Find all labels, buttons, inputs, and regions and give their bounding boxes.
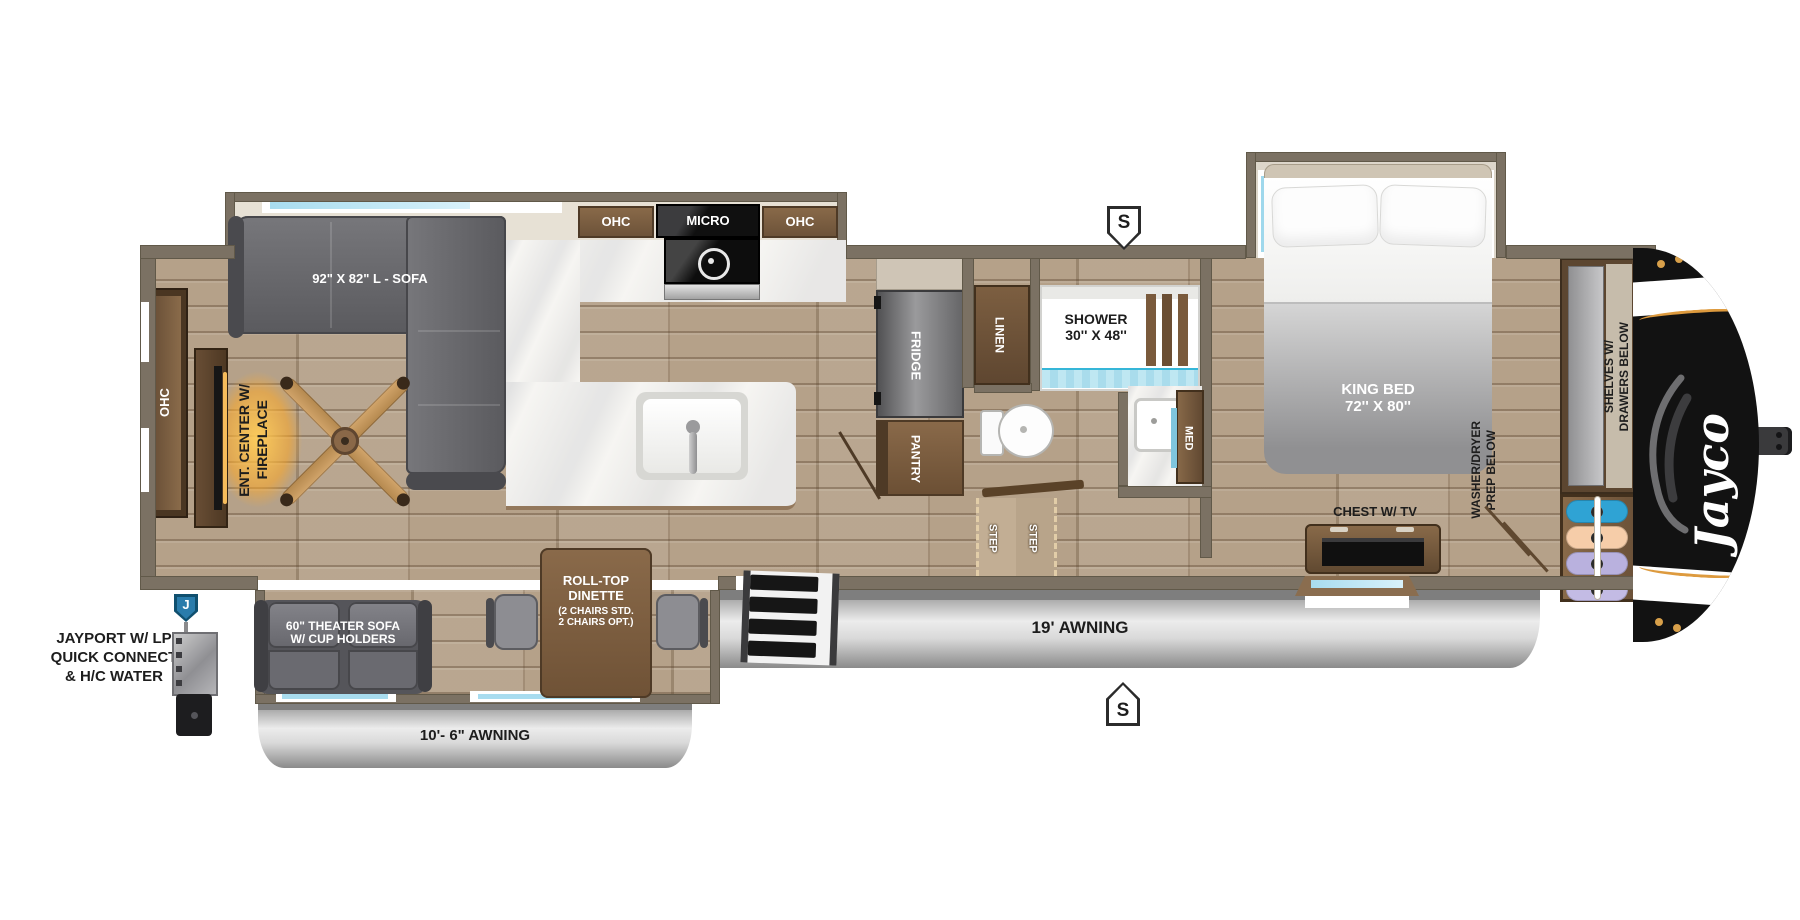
ent-center-label: ENT. CENTER W/ FIREPLACE [232, 352, 276, 528]
shelves-label-line2: DRAWERS BELOW [1618, 322, 1631, 431]
bed-label-line2: 72'' X 80'' [1298, 399, 1458, 416]
entry-step-tread-2 [749, 597, 817, 614]
dinette-label-line1: ROLL-TOP [542, 574, 650, 589]
sofa-seam-2 [418, 330, 500, 332]
step-label-1: STEP [986, 516, 998, 560]
jayport-label-line1: JAYPORT W/ LP [36, 630, 192, 649]
s-marker-top-letter: S [1107, 212, 1141, 233]
bottom-wall-front-segment [718, 576, 1648, 590]
hitch-pin-dot-1 [1776, 432, 1782, 438]
awning-rear-label: 10'- 6" AWNING [300, 728, 650, 745]
theater-sofa-seat-left [268, 650, 340, 690]
jayport-label-line3: & H/C WATER [36, 668, 192, 687]
top-wall-rear-segment [140, 245, 235, 259]
entry-step-tread-3 [748, 619, 816, 636]
sofa-seam-3 [418, 404, 500, 406]
theater-sofa-label: 60" THEATER SOFA W/ CUP HOLDERS [262, 620, 424, 647]
washer-dryer-label-line1: WASHER/DRYER [1470, 421, 1483, 519]
top-wall-mid-segment [846, 245, 1246, 259]
bath-wall-linen-shower [1030, 258, 1040, 391]
bath-wall-bottom-right [1118, 486, 1212, 498]
theater-sofa-seat-right [348, 650, 418, 690]
ent-center-label-line1: ENT. CENTER W/ [237, 384, 253, 497]
shower-water-strip [1042, 368, 1198, 388]
bed-slide-wall-top [1246, 152, 1506, 162]
bed-slide-wall-right [1496, 152, 1506, 258]
chest-handle-left [1330, 527, 1348, 532]
ceiling-fan [298, 394, 394, 490]
ohc-right-label: OHC [762, 215, 838, 230]
cap-gold-dot-bottom-2 [1673, 624, 1681, 632]
bed-label-line1: KING BED [1298, 382, 1458, 399]
dinette-label-line2: DINETTE [542, 589, 650, 604]
ent-center-glowline [223, 372, 227, 504]
linen-label: LINEN [992, 302, 1005, 368]
theater-sofa-label-line2: W/ CUP HOLDERS [262, 633, 424, 646]
med-vanity-sink-dot [1151, 418, 1157, 424]
bed-pillow-right [1379, 184, 1487, 248]
sofa-arm-bottom [406, 472, 506, 490]
fridge-hinge-top [874, 296, 881, 309]
micro-label: MICRO [656, 214, 760, 229]
cap-gold-dot-top-2 [1675, 255, 1683, 263]
ent-center-screen [214, 366, 222, 510]
rear-wall [140, 245, 156, 590]
awning-main-label: 19' AWNING [960, 618, 1200, 637]
cap-gold-dot-top-1 [1657, 260, 1665, 268]
kitchen-faucet-neck [689, 432, 697, 474]
chest-tv [1322, 538, 1424, 566]
cap-gold-dot-bottom-1 [1655, 618, 1663, 626]
chest-label: CHEST W/ TV [1305, 505, 1445, 520]
shower-label-line1: SHOWER [1040, 312, 1152, 328]
toilet-seat-dot [1020, 426, 1027, 433]
kitchen-slide-window-glass [270, 201, 470, 209]
jayport-tag-letter: J [174, 598, 198, 613]
dinette-label-line4: 2 CHAIRS OPT.) [542, 617, 650, 628]
kitchen-slide-wall-top [225, 192, 847, 202]
slide-window-sofa-glass [282, 694, 388, 699]
fridge-hinge-bottom [874, 392, 881, 405]
stove-front-panel [664, 284, 760, 300]
shelves-label: SHELVES W/ DRAWERS BELOW [1598, 270, 1636, 484]
pantry-door-fold [876, 420, 888, 496]
dinette-chair-left-back [486, 598, 494, 648]
step-label-2: STEP [1026, 516, 1038, 560]
jayport-label-line2: QUICK CONNECT [36, 649, 192, 668]
bedroom-bottom-window-glass [1311, 580, 1403, 588]
entry-steps [740, 570, 839, 665]
bottom-slide-wall-right [710, 590, 720, 704]
dinette-chair-left [494, 594, 538, 650]
washer-dryer-label: WASHER/DRYER PREP BELOW [1466, 414, 1502, 526]
jayport-stem [184, 622, 188, 632]
shelves-label-line1: SHELVES W/ [1603, 340, 1616, 413]
med-cabinet-blue-strip [1171, 408, 1177, 468]
ohc-left-label: OHC [578, 215, 654, 230]
shower-label-line2: 30'' X 48'' [1040, 328, 1152, 344]
rear-wall-window-2 [141, 428, 149, 492]
bed-slide-wall-left [1246, 152, 1256, 258]
stove-burner [698, 248, 730, 280]
jayport-unit-ports [176, 638, 182, 686]
jayport-label: JAYPORT W/ LP QUICK CONNECT & H/C WATER [36, 630, 192, 686]
fan-hub-dot [341, 437, 349, 445]
floorplan-canvas: 19' AWNING 10'- 6" AWNING OHC MICRO OHC … [0, 0, 1800, 920]
rear-wall-window-1 [141, 302, 149, 362]
washer-dryer-label-line2: PREP BELOW [1485, 430, 1498, 510]
chest-handle-right [1396, 527, 1414, 532]
s-marker-top: S [1107, 206, 1141, 250]
fridge-top-filler [876, 258, 964, 290]
sofa-arm-left [228, 216, 244, 338]
entry-step-tread-1 [750, 575, 818, 592]
front-cap: Jayco [1633, 248, 1759, 642]
stove-burner-center [708, 258, 714, 264]
theater-sofa-label-line1: 60" THEATER SOFA [262, 620, 424, 633]
bath-wall-left [962, 258, 974, 388]
sofa-label: 92" X 82" L - SOFA [260, 272, 480, 287]
fridge-label: FRIDGE [908, 316, 923, 396]
dinette-label: ROLL-TOP DINETTE (2 CHAIRS STD. 2 CHAIRS… [542, 574, 650, 628]
bedroom-bottom-window-sill [1305, 596, 1409, 608]
shower-door-bar-3 [1178, 294, 1188, 366]
dinette-chair-right-back [700, 598, 708, 648]
sofa-right-section [406, 216, 506, 474]
hitch-pin-dot-2 [1776, 444, 1782, 450]
bed-label: KING BED 72'' X 80'' [1298, 382, 1458, 416]
shower-door-bar-2 [1162, 294, 1172, 366]
bottom-wall-rear-segment [140, 576, 258, 590]
dinette-label-line3: (2 CHAIRS STD. [542, 606, 650, 617]
ent-center-label-line2: FIREPLACE [255, 400, 271, 479]
shower-label: SHOWER 30'' X 48'' [1040, 312, 1152, 343]
s-marker-bottom-letter: S [1106, 700, 1140, 721]
cap-jayco-logo: Jayco [1685, 340, 1739, 550]
jayport-unit-lower-dot [191, 712, 198, 719]
dinette-chair-right [656, 594, 700, 650]
med-label: MED [1182, 416, 1194, 460]
rear-ohc-label: OHC [158, 368, 173, 438]
s-marker-bottom: S [1106, 682, 1140, 726]
pantry-label: PANTRY [908, 428, 921, 490]
jayport-tag: J [174, 594, 198, 622]
bed-pillow-left [1271, 184, 1379, 248]
entry-step-tread-4 [748, 641, 816, 658]
